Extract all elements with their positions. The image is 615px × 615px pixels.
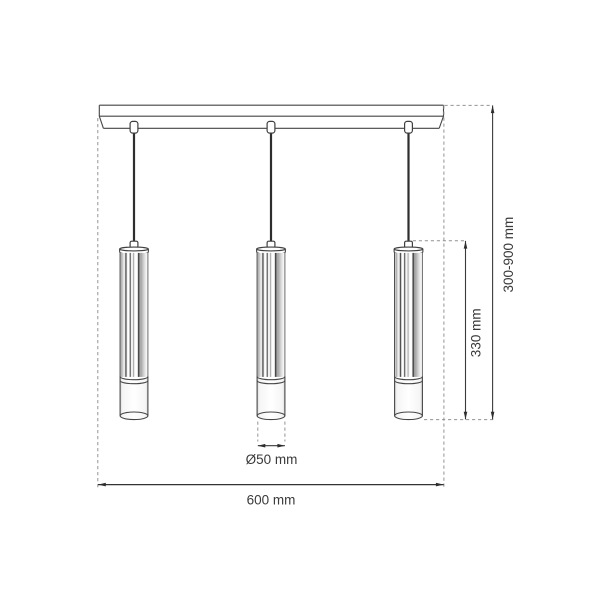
- svg-text:330 mm: 330 mm: [469, 308, 484, 357]
- svg-text:600 mm: 600 mm: [247, 492, 296, 507]
- svg-text:Ø50 mm: Ø50 mm: [246, 452, 298, 467]
- svg-text:300-900 mm: 300-900 mm: [501, 217, 516, 293]
